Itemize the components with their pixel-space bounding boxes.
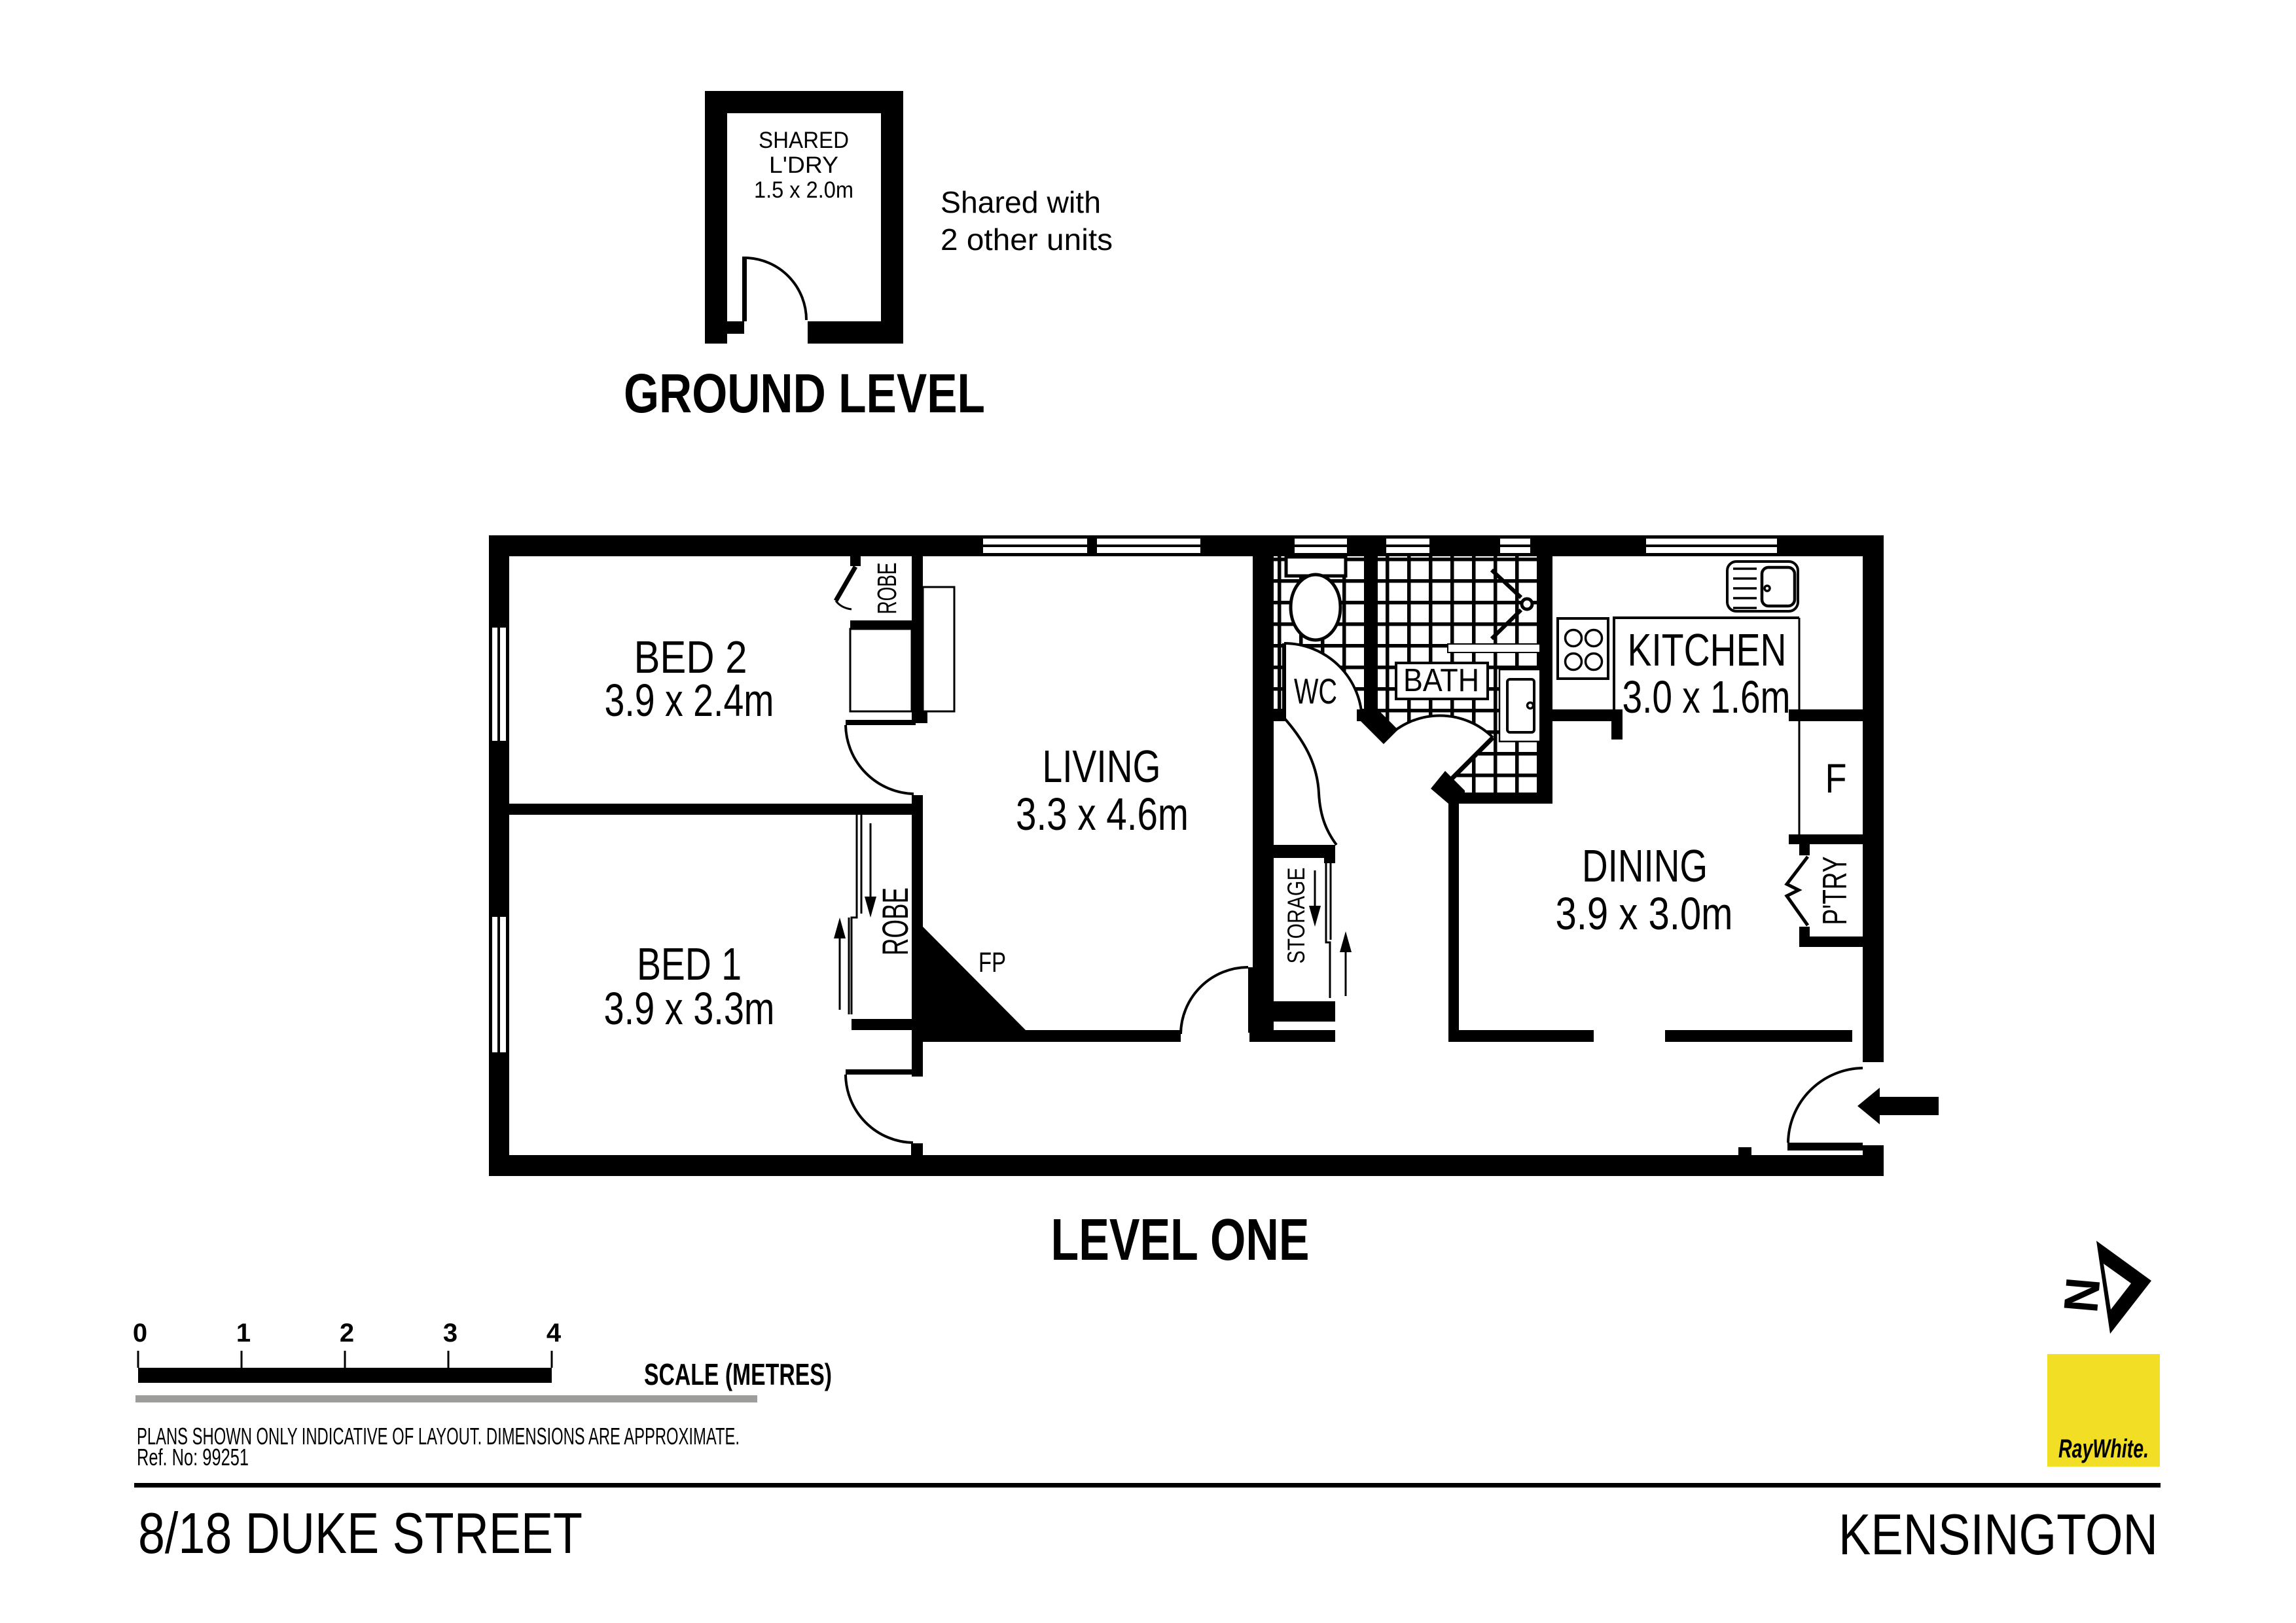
- svg-text:RayWhite.: RayWhite.: [2058, 1435, 2149, 1463]
- svg-text:GROUND LEVEL: GROUND LEVEL: [624, 363, 985, 424]
- svg-text:ROBE: ROBE: [872, 563, 902, 615]
- svg-text:DINING: DINING: [1582, 840, 1708, 891]
- svg-text:2: 2: [340, 1319, 354, 1347]
- svg-text:BATH: BATH: [1403, 663, 1479, 698]
- svg-text:3.9 x 2.4m: 3.9 x 2.4m: [605, 675, 774, 726]
- svg-text:1: 1: [236, 1319, 251, 1347]
- svg-text:KENSINGTON: KENSINGTON: [1839, 1502, 2158, 1567]
- svg-text:3: 3: [443, 1319, 457, 1347]
- svg-text:BED 1: BED 1: [637, 938, 742, 990]
- svg-text:0: 0: [133, 1319, 147, 1347]
- svg-text:LIVING: LIVING: [1043, 741, 1161, 792]
- svg-text:4: 4: [547, 1319, 562, 1347]
- svg-text:KITCHEN: KITCHEN: [1628, 624, 1787, 675]
- svg-text:3.9 x 3.3m: 3.9 x 3.3m: [604, 983, 775, 1034]
- svg-text:3.9 x 3.0m: 3.9 x 3.0m: [1556, 888, 1733, 939]
- svg-text:Shared with: Shared with: [941, 185, 1101, 219]
- svg-text:3.0 x 1.6m: 3.0 x 1.6m: [1623, 671, 1791, 722]
- svg-text:ROBE: ROBE: [874, 887, 916, 955]
- svg-text:N: N: [2053, 1275, 2110, 1315]
- svg-text:P'TRY: P'TRY: [1816, 857, 1854, 925]
- svg-text:3.3 x 4.6m: 3.3 x 4.6m: [1016, 789, 1189, 840]
- svg-text:8/18 DUKE STREET: 8/18 DUKE STREET: [138, 1501, 583, 1565]
- svg-text:STORAGE: STORAGE: [1283, 868, 1310, 964]
- svg-text:2 other units: 2 other units: [941, 223, 1113, 257]
- svg-text:F: F: [1825, 756, 1847, 802]
- svg-text:L'DRY: L'DRY: [769, 152, 838, 178]
- svg-text:FP: FP: [978, 947, 1006, 978]
- svg-text:1.5 x 2.0m: 1.5 x 2.0m: [754, 177, 853, 203]
- svg-text:SHARED: SHARED: [759, 128, 849, 153]
- svg-text:Ref. No: 99251: Ref. No: 99251: [137, 1444, 249, 1471]
- svg-text:SCALE (METRES): SCALE (METRES): [644, 1357, 832, 1391]
- svg-text:LEVEL ONE: LEVEL ONE: [1051, 1207, 1310, 1273]
- svg-text:WC: WC: [1294, 671, 1337, 711]
